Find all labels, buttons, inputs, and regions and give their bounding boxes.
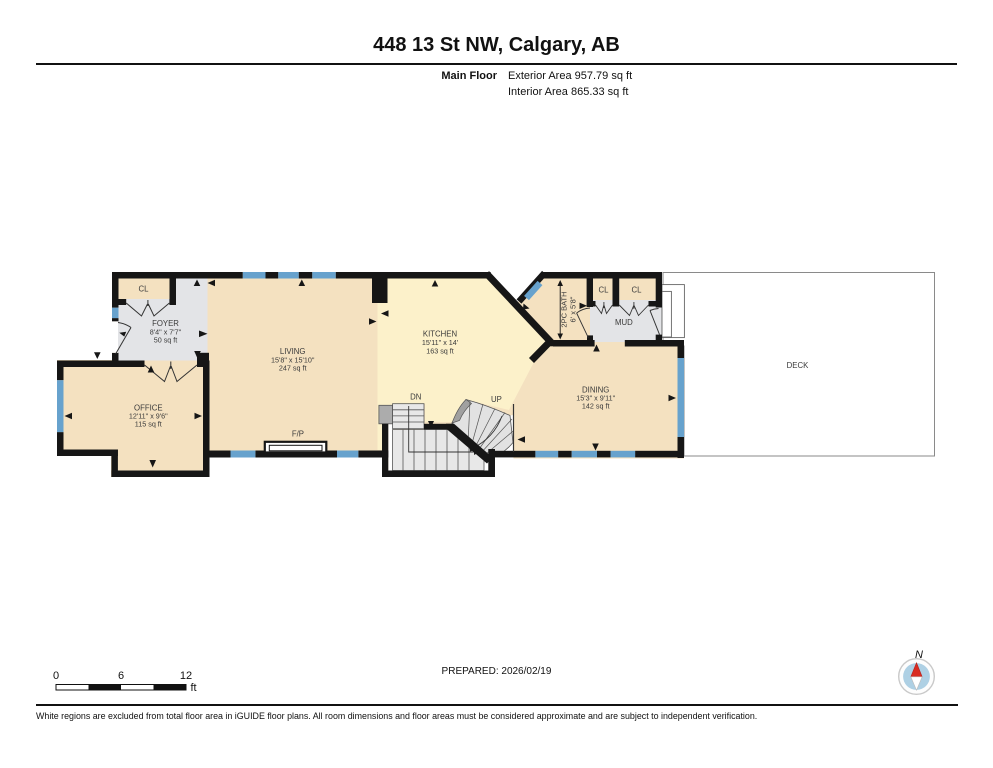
svg-text:ft: ft: [191, 682, 197, 694]
